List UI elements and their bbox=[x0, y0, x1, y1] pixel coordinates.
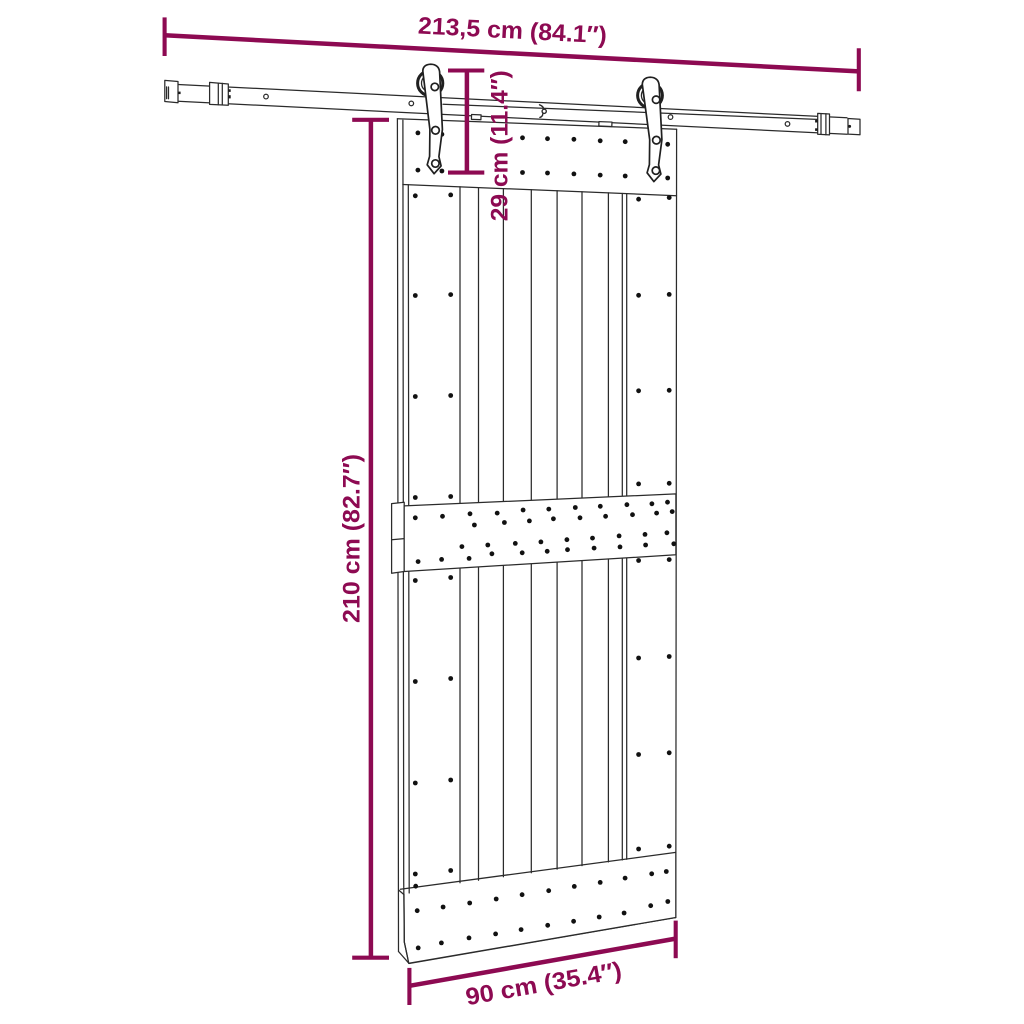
svg-text:29 cm (11.4″): 29 cm (11.4″) bbox=[487, 70, 514, 221]
svg-text:210 cm (82.7″): 210 cm (82.7″) bbox=[338, 454, 365, 623]
